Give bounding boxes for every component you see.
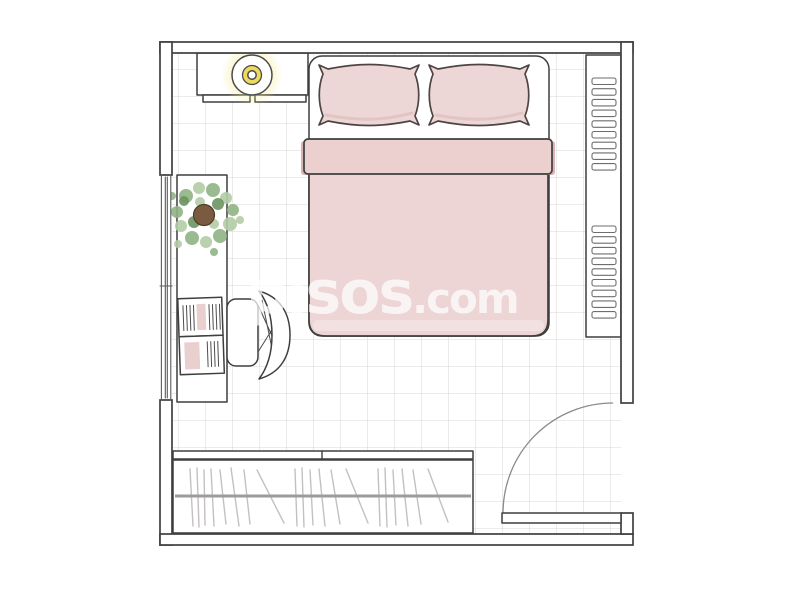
pillow-right <box>429 65 529 126</box>
wall-right-upper <box>621 42 633 403</box>
floorplan-drawing <box>0 0 800 600</box>
bed <box>301 56 555 336</box>
shelf-slats-bottom <box>592 226 616 318</box>
sheet-fold <box>304 139 552 174</box>
wall-left-lower <box>160 400 172 545</box>
floorplan-image: pisos .com <box>0 0 800 600</box>
door-leaf <box>502 513 621 523</box>
wall-right-lower <box>621 513 633 534</box>
window-icon <box>160 175 172 400</box>
wall-bottom <box>160 534 633 545</box>
shelf-slats-top <box>592 78 616 170</box>
pillow-left <box>319 65 419 126</box>
wall-left-upper <box>160 42 172 175</box>
wardrobe <box>173 451 473 533</box>
shelving-unit <box>586 55 621 337</box>
duvet-hem <box>313 320 544 331</box>
wardrobe-door-track <box>173 451 473 459</box>
notebook <box>178 297 225 374</box>
wall-top <box>160 42 633 53</box>
